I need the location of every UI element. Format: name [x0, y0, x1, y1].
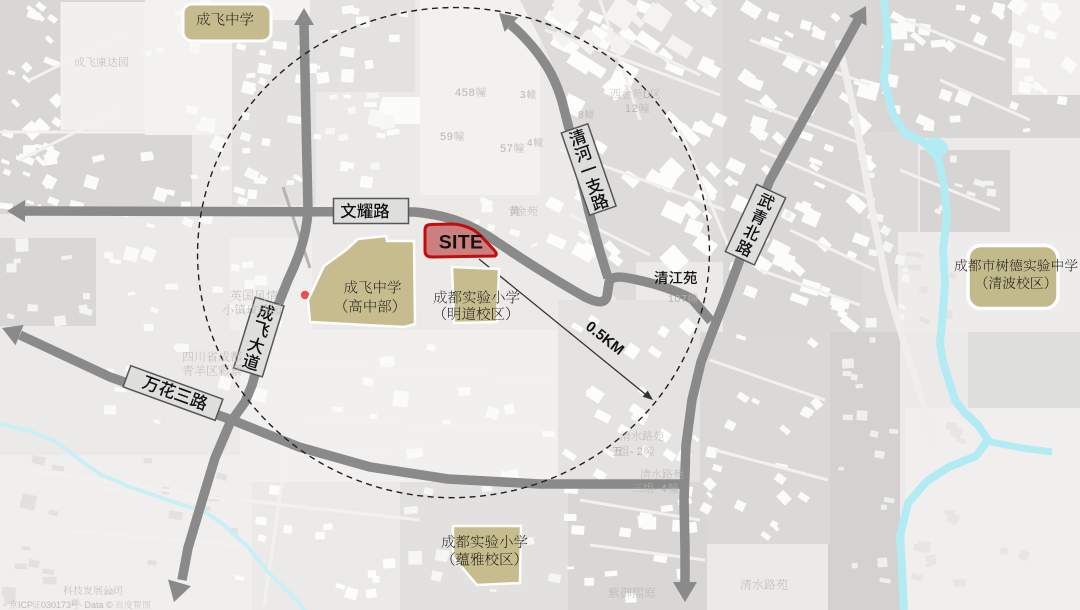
svg-text:030173: 030173 — [41, 600, 71, 610]
svg-text:ICP: ICP — [18, 600, 33, 610]
svg-text:SITE: SITE — [439, 232, 484, 254]
svg-text:4: 4 — [455, 87, 461, 99]
svg-text:2: 2 — [637, 446, 643, 458]
svg-text:7: 7 — [507, 143, 513, 155]
svg-text:黄: 黄 — [509, 204, 520, 218]
svg-text:0: 0 — [675, 293, 681, 305]
svg-text:-: - — [630, 446, 634, 458]
svg-text:-: - — [654, 483, 658, 495]
svg-text:8: 8 — [578, 110, 584, 121]
svg-text:D: D — [643, 89, 651, 101]
svg-text:7: 7 — [681, 293, 687, 305]
svg-text:5: 5 — [440, 131, 446, 143]
svg-text:-: - — [3, 600, 6, 610]
svg-text:3: 3 — [520, 90, 526, 101]
svg-text:9: 9 — [447, 131, 453, 143]
svg-text:1: 1 — [625, 103, 631, 115]
svg-text:4: 4 — [661, 483, 667, 495]
svg-text:4: 4 — [527, 138, 533, 149]
svg-text:2: 2 — [632, 103, 638, 115]
svg-text:5: 5 — [462, 87, 468, 99]
svg-text:1: 1 — [668, 293, 674, 305]
svg-text:8: 8 — [469, 87, 475, 99]
svg-text:5: 5 — [500, 143, 506, 155]
svg-text:- Data ©: - Data © — [79, 600, 113, 610]
